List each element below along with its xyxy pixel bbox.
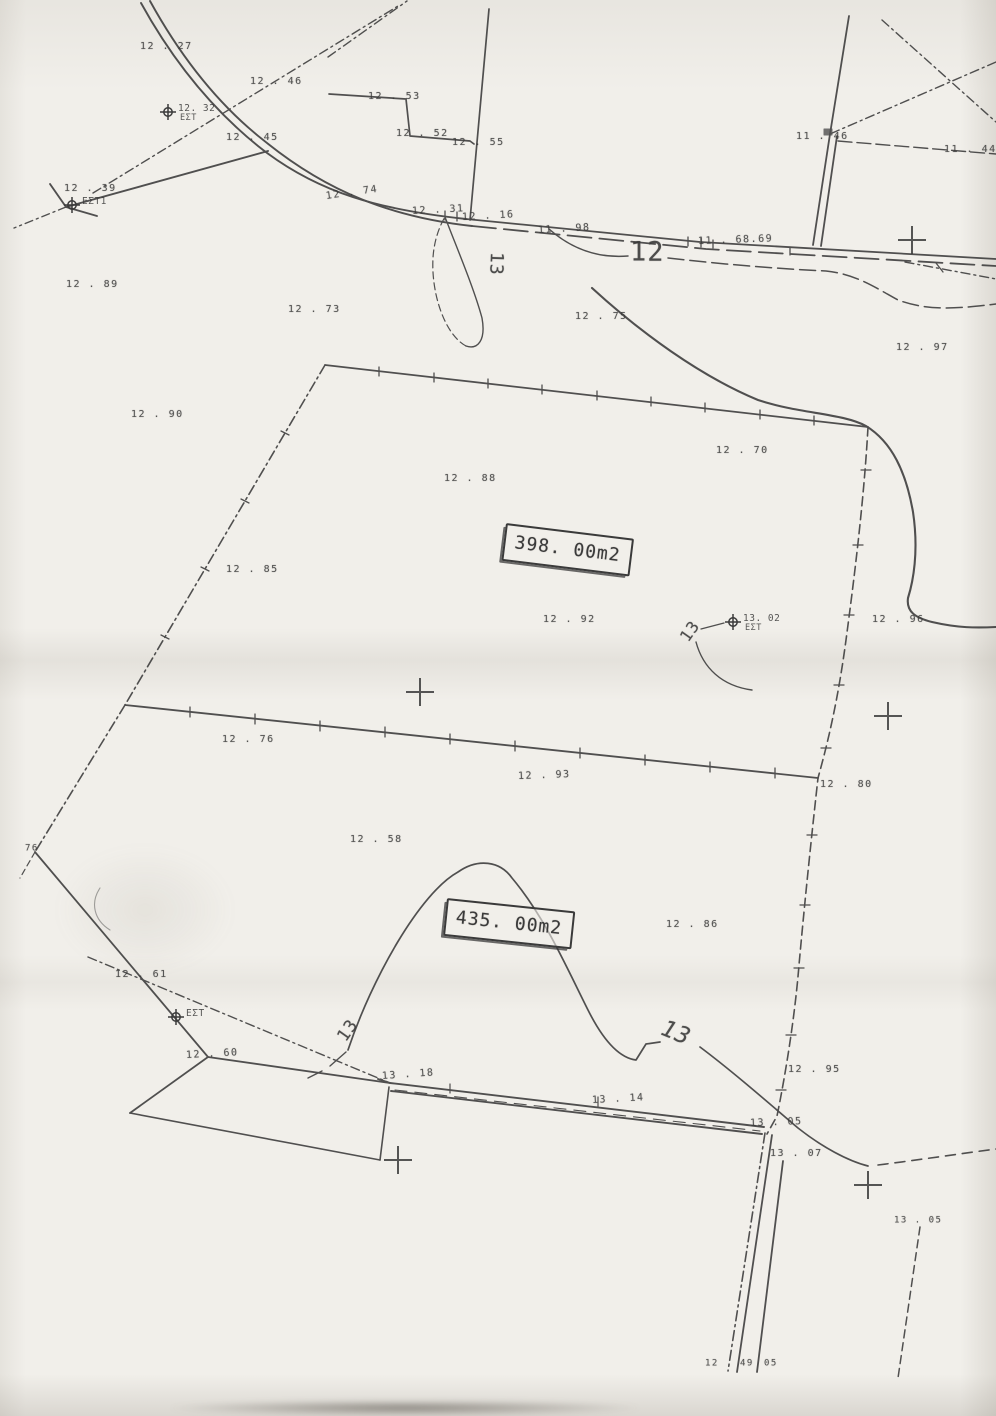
elevation-label: 12 . 46 [250, 77, 303, 87]
elevation-label: 13 . 05 [894, 1217, 942, 1226]
elevation-label: 12 . 45 [226, 133, 279, 143]
elevation-label: 12 [705, 1360, 719, 1369]
grid-cross-icon [854, 1171, 882, 1199]
elevation-label: 12 . 58 [350, 835, 403, 845]
elevation-label: 49 [740, 1360, 754, 1369]
station-cross-circle-icon [159, 103, 177, 121]
station-label: ΕΣΤ1 [82, 196, 107, 207]
station-cross-circle-icon [63, 196, 81, 214]
contour-label: 12 [630, 239, 665, 266]
station-sublabel: ΕΣΤ [180, 113, 197, 123]
elevation-label: 12 . 97 [896, 343, 949, 353]
station-cross-circle-icon [724, 613, 742, 631]
elevation-label: 12 . 90 [131, 410, 184, 420]
elevation-label: 12 . 55 [452, 138, 505, 148]
elevation-label: 12 . 95 [788, 1065, 841, 1075]
grid-cross-icon [384, 1146, 412, 1174]
grid-cross-icon [874, 702, 902, 730]
elevation-label: 12 . 76 [222, 735, 275, 745]
station-sublabel: ΕΣΤ [745, 623, 762, 633]
elevation-label: 12 . 93 [518, 770, 571, 782]
elevation-label: 12 . 86 [666, 920, 719, 930]
elevation-label: 12 . 73 [288, 305, 341, 315]
parcel-area-label: 398. 00m2 [513, 532, 621, 566]
elevation-label: 12 . 39 [64, 184, 117, 194]
station-label: ΕΣΤ [186, 1008, 205, 1019]
elevation-label: 12 . 52 [396, 129, 449, 139]
parcel-area-label: 435. 00m2 [455, 907, 563, 939]
elevation-label: 12 . 85 [226, 565, 279, 575]
station-cross-circle-icon [167, 1008, 185, 1026]
elevation-label: 12 . 89 [66, 280, 119, 290]
elevation-label: 12 . 75 [575, 312, 628, 322]
grid-cross-icon [406, 678, 434, 706]
elevation-label: 12 . 61 [115, 970, 168, 980]
elevation-label: 12 . 53 [368, 92, 421, 102]
elevation-label: 11 . 44 [944, 145, 996, 155]
elevation-label: 76 [25, 845, 39, 854]
elevation-label: 12 . 96 [872, 615, 925, 625]
elevation-label: 12 . 80 [820, 780, 873, 790]
elevation-label: 12 . 27 [140, 42, 193, 52]
contour-label: 13 [486, 252, 505, 276]
elevation-label: 12 . 88 [444, 474, 497, 484]
elevation-label: 13 . 07 [770, 1149, 823, 1159]
grid-cross-icon [898, 226, 926, 254]
elevation-label: 11 . 46 [796, 132, 849, 142]
elevation-label: 05 [764, 1360, 778, 1369]
elevation-label: 12 . 92 [543, 615, 596, 625]
scanned-survey-map: 398. 00m2 435. 00m2 12 . 2712 . 4612 . 4… [0, 0, 996, 1416]
elevation-label: 13 . 05 [750, 1117, 803, 1129]
elevation-label: 12 . 70 [716, 446, 769, 456]
